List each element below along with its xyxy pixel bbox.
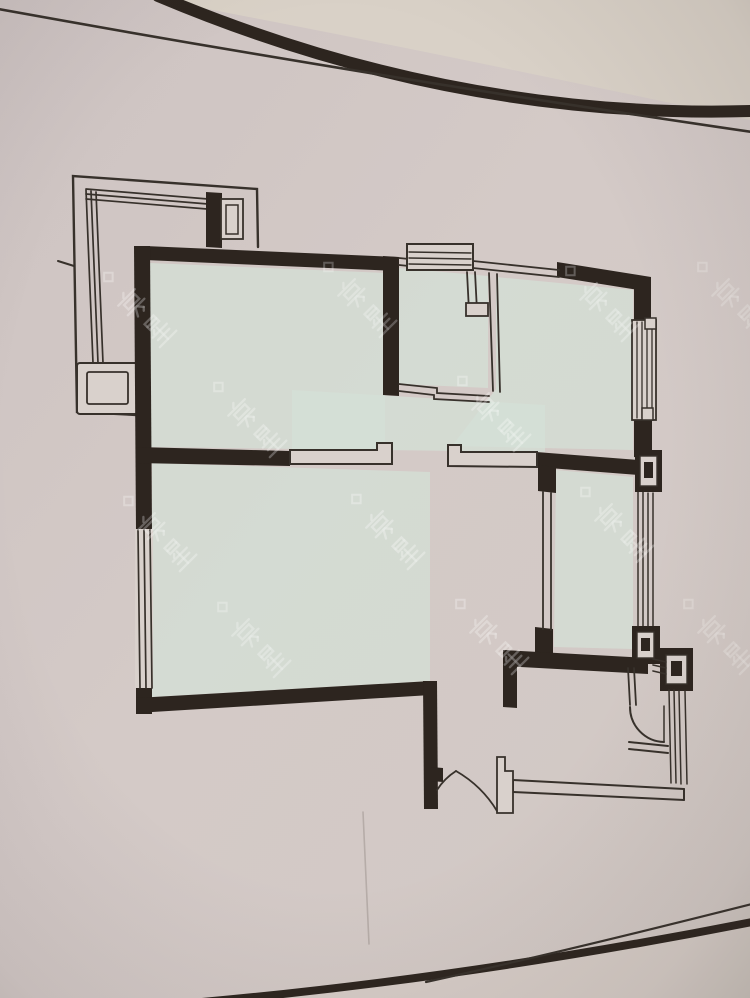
- photo-vignette: [0, 0, 750, 998]
- floor-plan-canvas: [0, 0, 750, 998]
- floorplan-photo: 房星 Photograph of an apartment floor-plan…: [0, 0, 750, 998]
